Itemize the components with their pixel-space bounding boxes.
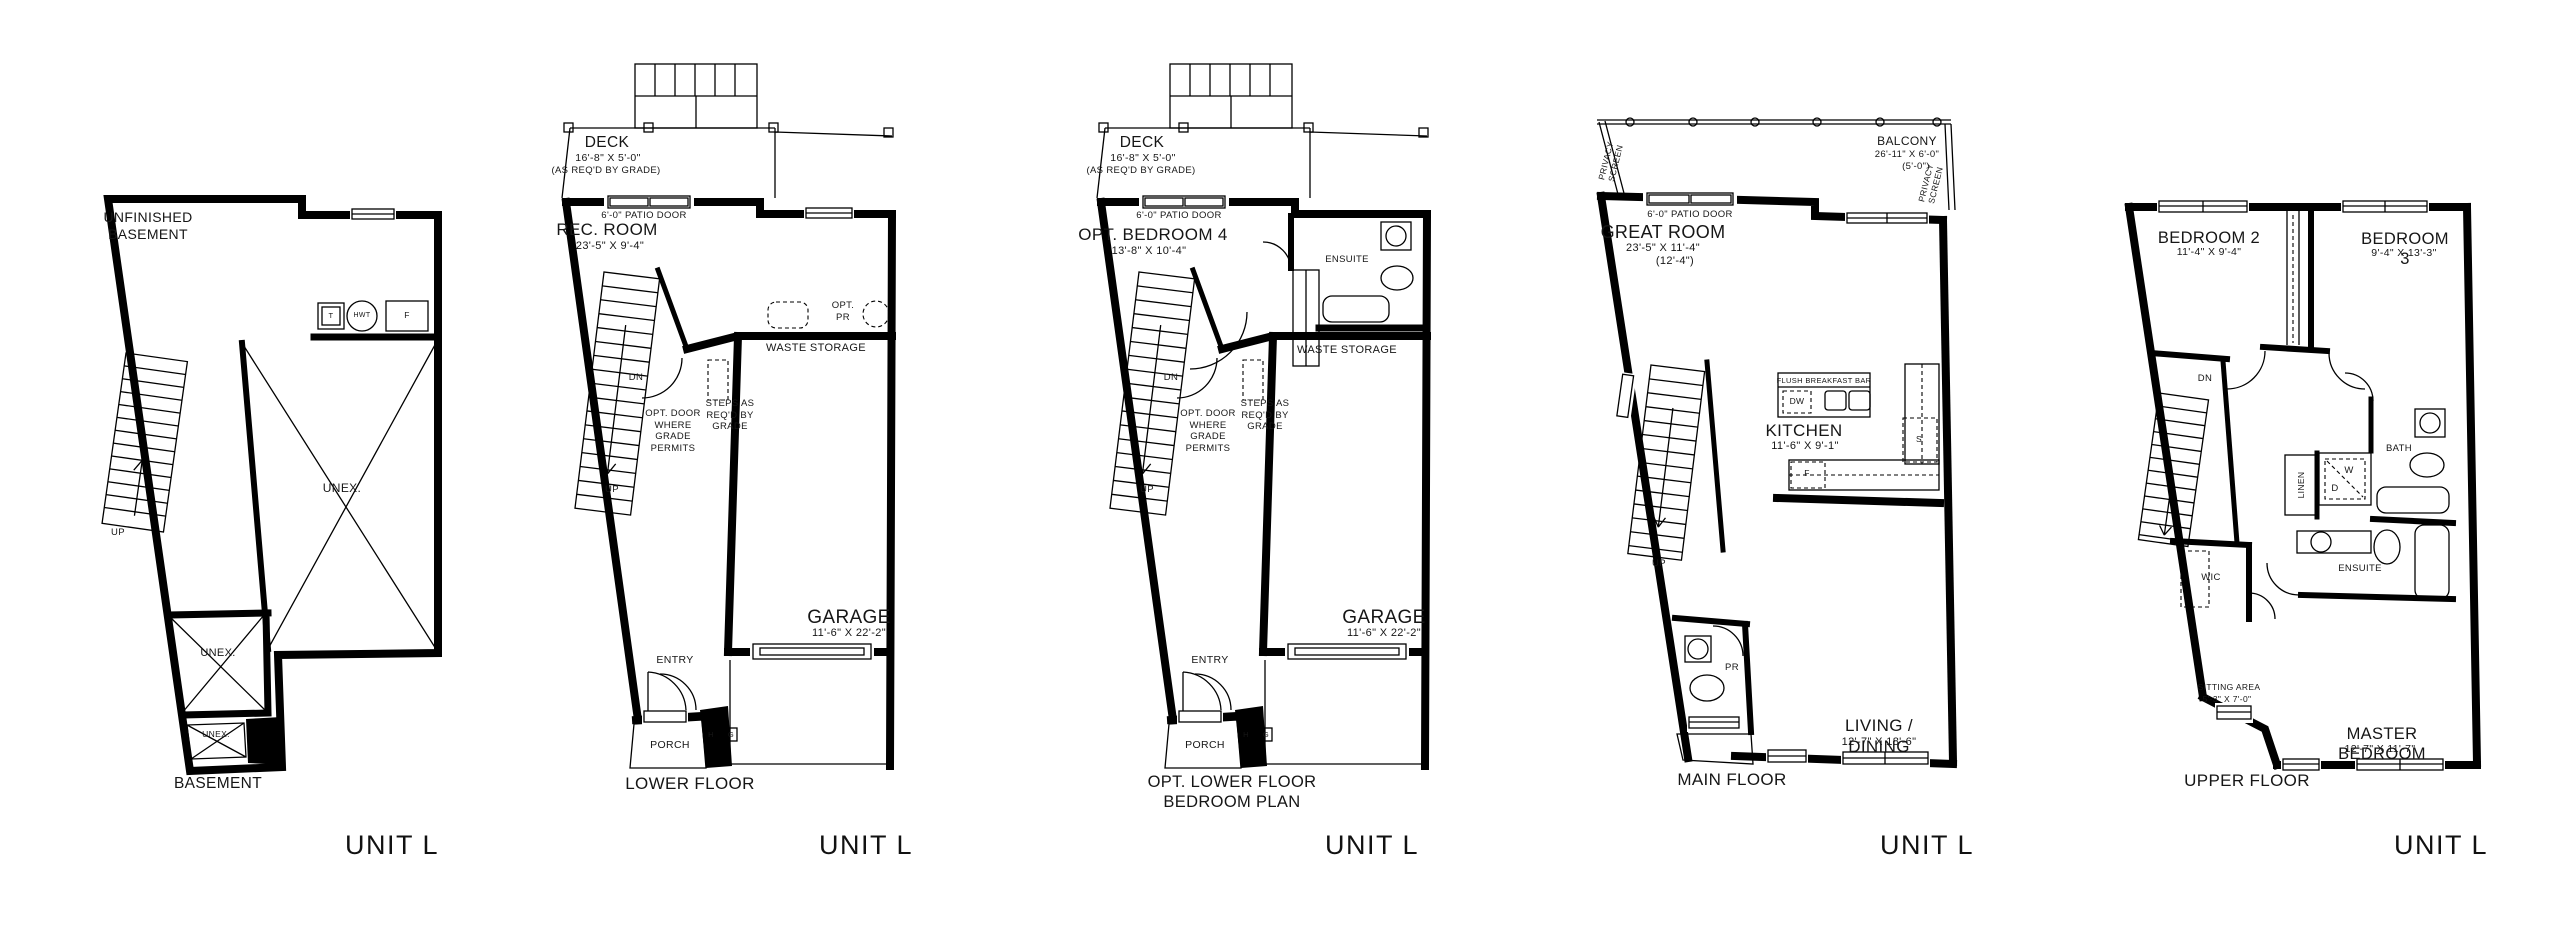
balcony-dim2: (5'-0") [1902, 161, 1930, 173]
deck-note: (AS REQ'D BY GRADE) [1086, 165, 1195, 177]
washer-dryer [2319, 453, 2371, 505]
opt-door-note: OPT. DOOR WHERE GRADE PERMITS [645, 408, 700, 454]
garage-label: GARAGE [807, 606, 890, 629]
entry-door-swing [660, 674, 696, 710]
bedroom3-window [2341, 198, 2429, 216]
unex-label-small: UNEX. [202, 729, 230, 739]
hwt-label: HWT [354, 312, 371, 321]
stairs [1628, 365, 1705, 560]
stairs [575, 272, 660, 515]
unit-label-lower: UNIT L [819, 830, 913, 861]
dw-label: DW [1790, 396, 1805, 406]
great-room-label: GREAT ROOM [1601, 222, 1726, 244]
bedroom3-dim: 9'-4" X 13'-3" [2371, 247, 2436, 260]
deck-dim: 16'-8" X 5'-0" [1110, 152, 1175, 165]
kitchen-wall [1777, 498, 1940, 503]
opt-steps-dashed [1243, 360, 1263, 400]
rec-room-label: REC. ROOM [556, 220, 657, 241]
basement-outline [108, 199, 438, 771]
fridge-label: F [1804, 468, 1810, 478]
floor-label-opt-lower: OPT. LOWER FLOOR BEDROOM PLAN [1148, 772, 1317, 812]
deck-dim: 16'-8" X 5'-0" [575, 152, 640, 165]
basement-plan-drawing [90, 185, 460, 805]
waste-storage-label: WASTE STORAGE [766, 342, 866, 355]
steps-note: STEPS AS REQ'D BY GRADE [1241, 398, 1290, 433]
garage-dim: 11'-6" X 22'-2" [1347, 627, 1421, 640]
rec-room-window [804, 205, 854, 221]
garage-label: GARAGE [1342, 606, 1425, 629]
porch [630, 672, 706, 768]
opt-powder-room [768, 301, 889, 328]
patio-door [604, 193, 694, 210]
garage-dim: 11'-6" X 22'-2" [812, 627, 886, 640]
wic-label: WIC [2201, 572, 2221, 584]
deck-label: DECK [585, 134, 629, 153]
great-room-window [1845, 210, 1929, 226]
main-outline [1601, 196, 1953, 764]
waste-storage-wall [1222, 336, 1427, 652]
patio-door-label: 6'-0" PATIO DOOR [1136, 210, 1221, 222]
breakfast-bar-label: FLUSH BREAKFAST BAR [1777, 376, 1872, 385]
balcony-label: BALCONY [1877, 134, 1937, 149]
linen-label: LINEN [2296, 472, 2306, 499]
floor-label-main: MAIN FLOOR [1677, 770, 1786, 791]
kitchen-dim: 11'-6" X 9'-1" [1771, 440, 1838, 453]
garage-door [1263, 641, 1425, 663]
waste-storage-wall [687, 336, 892, 652]
meter-g-label: G [1263, 730, 1269, 739]
great-room-dim: 23'-5" X 11'-4" [1626, 242, 1700, 255]
rec-room-dim: 23'-5" X 9'-4" [576, 240, 644, 253]
kitchen-label: KITCHEN [1765, 421, 1842, 442]
patio-door [1139, 193, 1229, 210]
steps-note: STEPS AS REQ'D BY GRADE [706, 398, 755, 433]
floor-label-lower: LOWER FLOOR [625, 774, 754, 795]
ensuite-room [2267, 525, 2453, 599]
upper-floor-drawing [2115, 195, 2490, 810]
basement-plan: UNFINISHED BASEMENT T HWT F UP UNEX. UNE… [90, 185, 460, 805]
sitting-area-label: SITTING AREA [2198, 682, 2261, 692]
furnace-label: F [404, 310, 410, 320]
master-bedroom-dim: 12'-7" X 11'-7" [2345, 743, 2416, 756]
bath-label: BATH [2386, 443, 2412, 455]
stair-wall [1707, 362, 1723, 550]
entry-label: ENTRY [656, 654, 693, 667]
meter-h-label: H [1243, 730, 1249, 739]
porch-label: PORCH [1185, 739, 1225, 752]
unex-label-mid: UNEX. [200, 647, 235, 660]
basement-window [350, 206, 396, 222]
garage-door [728, 641, 890, 663]
opt-pr-label: OPT. PR [832, 300, 855, 323]
stove-label: S [1916, 434, 1922, 444]
living-dining-dim: 12'-7" X 18'-6" [1842, 736, 1917, 749]
unex-label-large: UNEX. [323, 481, 361, 496]
unit-label-basement: UNIT L [345, 830, 439, 861]
porch-label: PORCH [650, 739, 690, 752]
upper-floor-plan: BEDROOM 2 11'-4" X 9'-4" BEDROOM 3 9'-4"… [2115, 195, 2490, 810]
sitting-window [2215, 703, 2253, 723]
stairs [1110, 272, 1195, 515]
room-label-unfinished-basement: UNFINISHED BASEMENT [103, 209, 192, 243]
pr-label: PR [1725, 662, 1739, 674]
floorplan-sheet: UNFINISHED BASEMENT T HWT F UP UNEX. UNE… [0, 0, 2560, 926]
main-floor-plan: PRIVACY SCREEN PRIVACY SCREEN BALCONY 26… [1585, 110, 1995, 820]
sitting-area-dim: 5'-3" X 7'-0" [2203, 694, 2252, 704]
dryer-label: D [2331, 483, 2338, 495]
entry-label: ENTRY [1191, 654, 1228, 667]
balcony-dim: 26'-11" X 6'-0" [1875, 149, 1940, 161]
bedroom2-window [2157, 198, 2249, 216]
opt-door-note: OPT. DOOR WHERE GRADE PERMITS [1180, 408, 1235, 454]
driveway-apron [730, 660, 887, 764]
waste-storage-label: WASTE STORAGE [1297, 344, 1397, 357]
tank-label: T [329, 311, 334, 320]
driveway-apron [1265, 660, 1422, 764]
stair-wall [658, 270, 687, 349]
patio-door [1643, 190, 1737, 207]
entry-door-swing [1195, 674, 1231, 710]
ensuite-fixtures [1323, 222, 1413, 322]
floor-label-upper: UPPER FLOOR [2184, 771, 2310, 792]
opt-bedroom4-label: OPT. BEDROOM 4 [1078, 225, 1227, 246]
washer-label: W [2344, 465, 2353, 477]
stair-wall [1193, 270, 1222, 349]
up-label: UP [1652, 558, 1666, 570]
opt-bedroom4-dim: 13'-8" X 10'-4" [1112, 245, 1187, 258]
up-label: UP [1140, 484, 1154, 496]
unit-label-upper: UNIT L [2394, 830, 2488, 861]
unit-label-opt-lower: UNIT L [1325, 830, 1419, 861]
floor-label-basement: BASEMENT [174, 775, 262, 794]
porch [1165, 672, 1241, 768]
meter-g-label: G [728, 730, 734, 739]
great-room-dim2: (12'-4") [1656, 255, 1694, 268]
meter-h-label: H [708, 730, 714, 739]
patio-door-label: 6'-0" PATIO DOOR [1647, 209, 1732, 221]
deck-stairs [1170, 64, 1292, 128]
up-label: UP [605, 484, 619, 496]
ensuite-label: ENSUITE [2338, 563, 2382, 575]
opt-lower-floor-plan: DECK 16'-8" X 5'-0" (AS REQ'D BY GRADE) … [1075, 60, 1470, 820]
opt-steps-dashed [708, 360, 728, 400]
powder-room [1675, 618, 1751, 732]
bedroom2-dim: 11'-4" X 9'-4" [2177, 246, 2242, 259]
lower-floor-plan: DECK 16'-8" X 5'-0" (AS REQ'D BY GRADE) … [540, 60, 930, 805]
hall-wall [2151, 353, 2227, 359]
deck-note: (AS REQ'D BY GRADE) [551, 165, 660, 177]
deck-stairs [635, 64, 757, 128]
deck-label: DECK [1120, 134, 1164, 153]
ensuite-label: ENSUITE [1325, 254, 1369, 266]
dn-label: DN [629, 372, 643, 384]
up-label: UP [111, 527, 125, 539]
dn-label: DN [2198, 373, 2212, 385]
unit-label-main: UNIT L [1880, 830, 1974, 861]
dn-label: DN [1164, 372, 1178, 384]
